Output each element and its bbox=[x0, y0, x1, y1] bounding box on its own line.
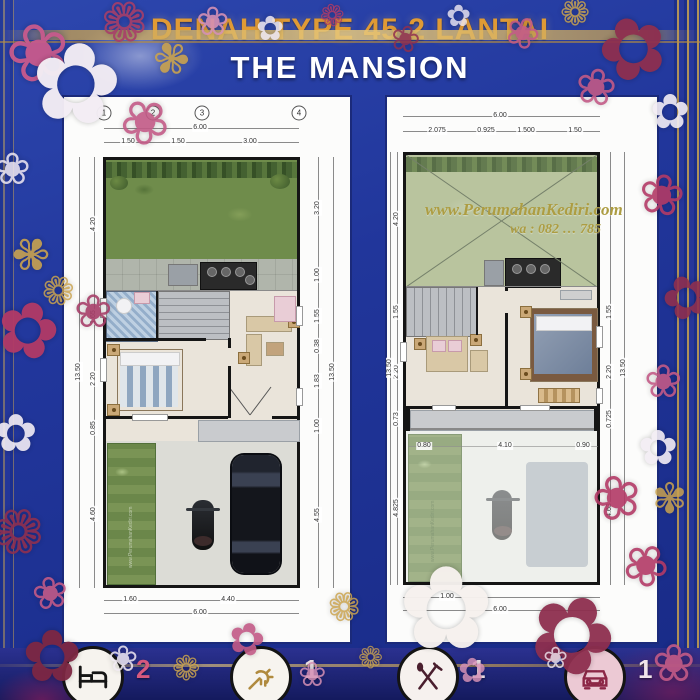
wall bbox=[476, 287, 478, 335]
garland-top-line bbox=[0, 41, 700, 43]
dim-label: 6.00 bbox=[492, 112, 508, 120]
dim-label: 6.00 bbox=[192, 124, 208, 132]
dim-label: 0.80 bbox=[416, 442, 432, 450]
window bbox=[132, 414, 168, 421]
window bbox=[296, 306, 303, 326]
nightstand bbox=[520, 368, 532, 380]
dim-label: 6.00 bbox=[192, 609, 208, 617]
bed-pillows bbox=[120, 352, 180, 366]
window bbox=[520, 405, 550, 411]
dim-label: 1.00 bbox=[439, 593, 455, 601]
column-marker: 4 bbox=[292, 106, 307, 121]
motorcycle-ghost bbox=[492, 490, 512, 540]
terrace bbox=[198, 420, 300, 442]
dim-label: 13.50 bbox=[75, 362, 83, 382]
frame-left-stripes bbox=[0, 0, 14, 700]
dim-label: 1.50 bbox=[120, 138, 136, 146]
floor-line bbox=[106, 290, 297, 291]
wall bbox=[156, 291, 158, 340]
hedge bbox=[106, 162, 297, 178]
wall bbox=[406, 408, 410, 431]
column-marker: 1 bbox=[97, 106, 112, 121]
toilet bbox=[116, 298, 132, 314]
roof-ghost bbox=[526, 462, 588, 567]
grass-watermark: www.PerumahanKediri.com bbox=[430, 501, 436, 562]
bush bbox=[270, 174, 290, 189]
shelf bbox=[560, 290, 592, 300]
rug bbox=[538, 388, 580, 403]
bed-pillows bbox=[536, 316, 592, 331]
window bbox=[100, 298, 107, 318]
void-cross-lines bbox=[406, 155, 597, 287]
dim-label: 0.38 bbox=[314, 338, 322, 354]
dim-label: 3.00 bbox=[242, 138, 258, 146]
dim-label: 1.55 bbox=[606, 304, 614, 320]
dim-label: 13.50 bbox=[620, 358, 628, 378]
dim-label: 4.10 bbox=[497, 442, 513, 450]
dim-label: 4.55 bbox=[314, 507, 322, 523]
legend-count: 2 bbox=[136, 654, 150, 685]
wall bbox=[228, 366, 231, 418]
wall bbox=[228, 338, 231, 348]
floor-line bbox=[406, 286, 597, 287]
sofa-cushion bbox=[448, 340, 462, 352]
window bbox=[596, 326, 603, 348]
dim-label: 1.50 bbox=[170, 138, 186, 146]
wall bbox=[594, 408, 598, 431]
dim-label: 0.925 bbox=[476, 127, 496, 135]
column-marker: 2 bbox=[146, 106, 161, 121]
dim-label: 1.50 bbox=[567, 127, 583, 135]
grass-watermark: www.PerumahanKediri.com bbox=[128, 507, 134, 568]
car-icon bbox=[564, 646, 626, 700]
legend-count: 1 bbox=[638, 654, 652, 685]
window bbox=[432, 405, 456, 411]
dim-label: 13.50 bbox=[329, 362, 337, 382]
dim-label: 1.60 bbox=[122, 596, 138, 604]
nightstand bbox=[107, 404, 120, 416]
dim-label: 4.825 bbox=[393, 498, 401, 518]
nightstand bbox=[107, 344, 120, 356]
bath-decor bbox=[134, 292, 150, 304]
stove bbox=[200, 262, 257, 290]
car bbox=[232, 455, 280, 573]
wall bbox=[505, 287, 508, 291]
bed-blanket bbox=[120, 365, 178, 407]
garland-top bbox=[0, 30, 700, 40]
legend-item-bedrooms: 2 bbox=[62, 646, 182, 700]
armchair bbox=[470, 350, 488, 372]
side-table bbox=[470, 334, 482, 346]
dim-label: 3.20 bbox=[314, 200, 322, 216]
dim-label: 2.20 bbox=[90, 371, 98, 387]
window bbox=[296, 388, 303, 406]
wall bbox=[505, 313, 508, 408]
bed-icon bbox=[62, 646, 124, 700]
nightstand bbox=[520, 306, 532, 318]
dim-label: 0.85 bbox=[90, 420, 98, 436]
window bbox=[596, 388, 603, 404]
dimension-line bbox=[403, 597, 600, 598]
window bbox=[400, 342, 407, 362]
dim-label: 0.90 bbox=[575, 442, 591, 450]
poster: DENAH TYPE 45 2 LANTAI THE MANSION www.P… bbox=[0, 0, 700, 700]
shower-icon bbox=[230, 646, 292, 700]
sink bbox=[168, 264, 198, 286]
column-marker: 3 bbox=[195, 106, 210, 121]
stairs bbox=[158, 291, 230, 340]
balcony-railing bbox=[410, 428, 594, 430]
cutlery-icon bbox=[397, 646, 459, 700]
bush bbox=[110, 176, 128, 190]
stairs bbox=[406, 287, 478, 337]
window bbox=[100, 358, 107, 382]
dim-label: 0.725 bbox=[606, 409, 614, 429]
bathroom bbox=[106, 291, 158, 342]
dim-label: 1.55 bbox=[314, 308, 322, 324]
wall bbox=[272, 416, 300, 419]
legend-item-kitchen: 1 bbox=[397, 646, 517, 700]
double-door bbox=[228, 386, 272, 416]
dim-label: 1.65 bbox=[90, 309, 98, 325]
dim-label: 0.73 bbox=[393, 411, 401, 427]
dim-label: 2.20 bbox=[606, 364, 614, 380]
dim-label: 4.20 bbox=[90, 216, 98, 232]
dim-label: 1.00 bbox=[314, 418, 322, 434]
coffee-table bbox=[266, 342, 284, 356]
legend-item-carport: 1 bbox=[564, 646, 684, 700]
motorcycle bbox=[192, 500, 214, 550]
frame-right-stripes bbox=[674, 0, 700, 700]
dim-label: 1.83 bbox=[314, 373, 322, 389]
watermark-site: www.PerumahanKediri.com bbox=[425, 200, 623, 220]
sofa-cushion bbox=[432, 340, 446, 352]
watermark-contact: wa : 082 … 785 bbox=[510, 222, 601, 238]
dim-label: 13.50 bbox=[386, 358, 394, 378]
legend-count: 1 bbox=[304, 654, 318, 685]
dim-label: 4.63 bbox=[606, 502, 614, 518]
dim-label: 4.40 bbox=[220, 596, 236, 604]
legend-count: 1 bbox=[471, 654, 485, 685]
console-cabinet bbox=[274, 296, 296, 322]
side-table bbox=[414, 338, 426, 350]
dim-label: 1.500 bbox=[516, 127, 536, 135]
dim-label: 6.00 bbox=[492, 606, 508, 614]
dim-label: 2.075 bbox=[427, 127, 447, 135]
side-table bbox=[238, 352, 250, 364]
dim-label: 4.20 bbox=[393, 211, 401, 227]
poster-subtitle: THE MANSION bbox=[0, 50, 700, 86]
dim-label: 4.60 bbox=[90, 506, 98, 522]
dim-label: 1.00 bbox=[314, 267, 322, 283]
dim-label: 2.20 bbox=[393, 364, 401, 380]
dim-label: 1.55 bbox=[393, 304, 401, 320]
legend-item-bathrooms: 1 bbox=[230, 646, 350, 700]
